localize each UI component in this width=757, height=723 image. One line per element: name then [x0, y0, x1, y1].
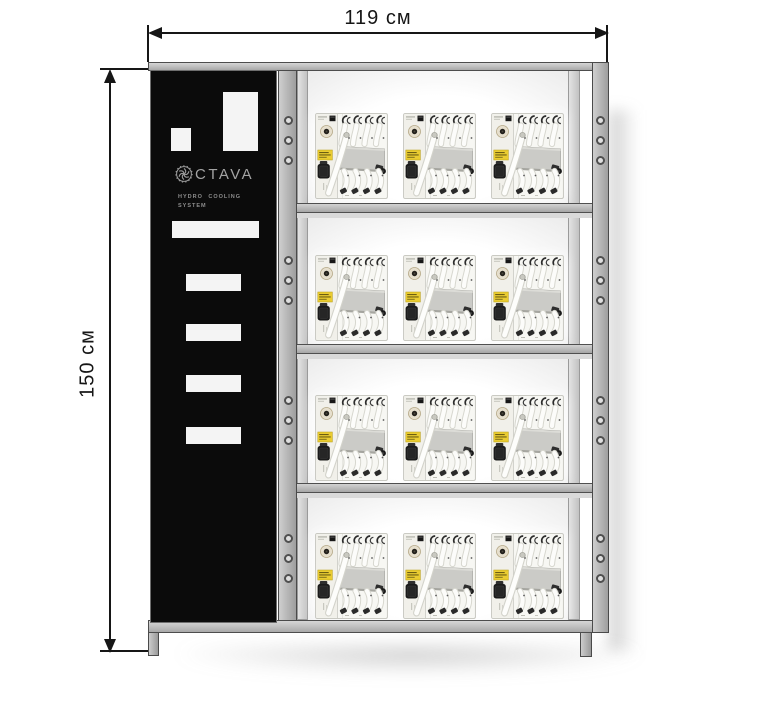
mounting-hole: [596, 416, 605, 425]
cast-shadow-bottom: [170, 645, 650, 675]
mounting-hole: [284, 116, 293, 125]
network-port-icon: [418, 536, 424, 542]
cooling-unit: [315, 533, 388, 619]
round-connector-icon: [497, 268, 509, 280]
network-port-icon: [418, 116, 424, 122]
round-connector-icon: [409, 268, 421, 280]
mounting-hole: [596, 136, 605, 145]
cast-shadow-right: [609, 110, 637, 650]
round-connector-icon: [321, 268, 333, 280]
shelf-divider-3: [278, 483, 609, 493]
network-port-icon: [330, 116, 336, 122]
extension-tick: [606, 25, 608, 62]
panel-vent-slot: [172, 221, 259, 238]
cooling-unit: [491, 255, 564, 341]
cooling-unit: [491, 533, 564, 619]
mounting-hole: [596, 256, 605, 265]
yellow-warning-label: [494, 432, 509, 442]
mounting-hole: [596, 276, 605, 285]
arrowhead-up-icon: [104, 69, 116, 83]
diagram-canvas: 119 см 150 см: [0, 0, 757, 723]
shelf-divider-3-lip: [278, 493, 609, 498]
mounting-hole: [284, 436, 293, 445]
yellow-warning-label: [406, 292, 421, 302]
brand-logo-text: CTAVA: [195, 166, 254, 183]
brand-tagline: HYDRO COOLING SYSTEM: [178, 193, 241, 212]
yellow-warning-label: [318, 150, 333, 160]
brand-tagline-line1: HYDRO COOLING: [178, 193, 241, 202]
yellow-warning-label: [318, 292, 333, 302]
round-connector-icon: [409, 126, 421, 138]
mounting-hole: [596, 436, 605, 445]
shelf-divider-1-lip: [278, 213, 609, 218]
brand-logo: CTAVA: [175, 165, 254, 183]
round-connector-icon: [409, 546, 421, 558]
yellow-warning-label: [318, 432, 333, 442]
network-port-icon: [330, 398, 336, 404]
shelf-divider-2: [278, 344, 609, 354]
mounting-hole: [284, 156, 293, 165]
shelf-divider-1: [278, 203, 609, 213]
cooling-unit: [491, 113, 564, 199]
cooling-unit: [315, 255, 388, 341]
mounting-hole: [284, 534, 293, 543]
yellow-warning-label: [494, 570, 509, 580]
network-port-icon: [418, 398, 424, 404]
network-port-icon: [506, 536, 512, 542]
cooling-unit: [403, 395, 476, 481]
yellow-warning-label: [494, 292, 509, 302]
panel-vent-slot: [186, 274, 241, 291]
arrowhead-left-icon: [148, 27, 162, 39]
extension-tick: [100, 68, 148, 70]
round-connector-icon: [497, 408, 509, 420]
mounting-hole: [284, 554, 293, 563]
yellow-warning-label: [406, 570, 421, 580]
round-connector-icon: [409, 408, 421, 420]
cooling-unit: [491, 395, 564, 481]
shelf-divider-2-lip: [278, 354, 609, 359]
cooling-unit: [315, 395, 388, 481]
cooling-unit: [315, 113, 388, 199]
width-dimension-label: 119 см: [148, 7, 608, 30]
round-connector-icon: [321, 126, 333, 138]
round-connector-icon: [497, 546, 509, 558]
height-dimension-line: [109, 73, 111, 649]
cooling-unit: [403, 255, 476, 341]
mounting-hole: [284, 396, 293, 405]
impeller-gear-icon: [175, 165, 193, 183]
extension-tick: [147, 25, 149, 62]
mounting-hole: [596, 296, 605, 305]
round-connector-icon: [497, 126, 509, 138]
panel-vent-slot: [186, 427, 241, 444]
mounting-hole: [284, 296, 293, 305]
mounting-hole: [284, 276, 293, 285]
cooling-unit: [403, 113, 476, 199]
round-connector-icon: [321, 546, 333, 558]
yellow-warning-label: [494, 150, 509, 160]
height-dimension-label: 150 см: [77, 304, 100, 424]
network-port-icon: [506, 116, 512, 122]
network-port-icon: [418, 258, 424, 264]
panel-vent-slot: [186, 375, 241, 392]
network-port-icon: [506, 258, 512, 264]
mounting-hole: [284, 574, 293, 583]
yellow-warning-label: [406, 432, 421, 442]
rack-post-right: [592, 62, 609, 633]
rack-leg-right: [580, 631, 592, 657]
yellow-warning-label: [318, 570, 333, 580]
yellow-warning-label: [406, 150, 421, 160]
brand-tagline-line2: SYSTEM: [178, 202, 241, 211]
rack-leg-left: [148, 631, 159, 656]
network-port-icon: [330, 258, 336, 264]
mounting-hole: [596, 116, 605, 125]
mounting-hole: [284, 136, 293, 145]
cooling-unit: [403, 533, 476, 619]
brand-panel: CTAVA HYDRO COOLING SYSTEM: [150, 70, 277, 623]
mounting-hole: [284, 256, 293, 265]
mounting-hole: [596, 534, 605, 543]
mounting-hole: [596, 554, 605, 563]
width-dimension-line: [152, 32, 605, 34]
panel-cutout-small: [171, 128, 191, 151]
mounting-hole: [284, 416, 293, 425]
mounting-hole: [596, 574, 605, 583]
panel-vent-slot: [186, 324, 241, 341]
network-port-icon: [330, 536, 336, 542]
extension-tick: [100, 650, 148, 652]
network-port-icon: [506, 398, 512, 404]
mounting-hole: [596, 156, 605, 165]
mounting-hole: [596, 396, 605, 405]
round-connector-icon: [321, 408, 333, 420]
panel-cutout-large: [223, 92, 258, 151]
